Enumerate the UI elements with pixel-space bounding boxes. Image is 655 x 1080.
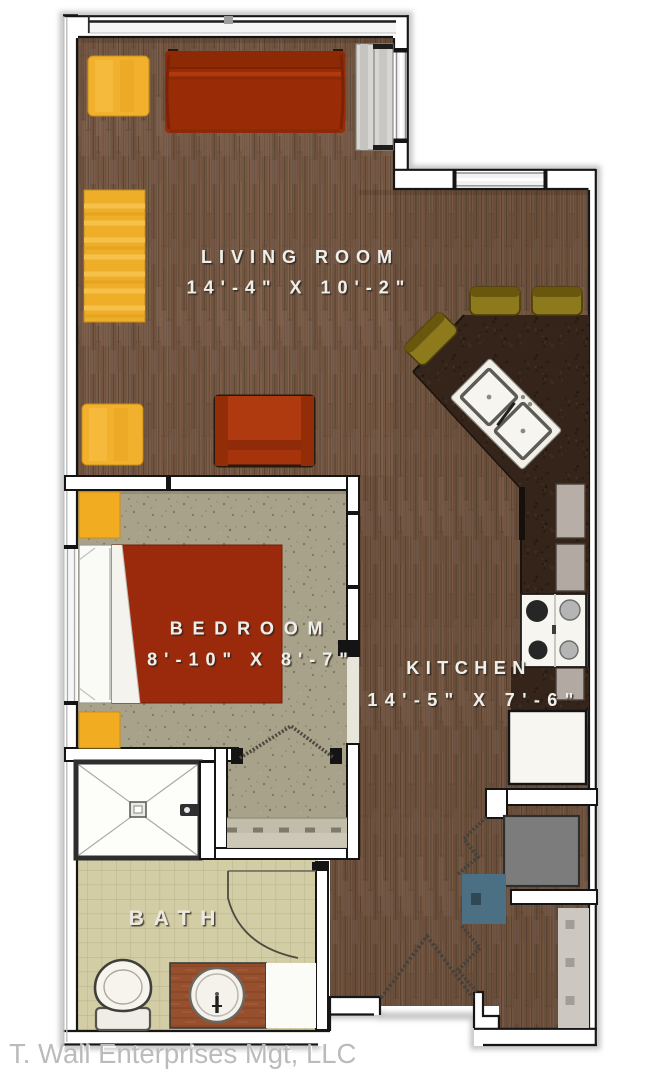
svg-text:LIVING ROOM: LIVING ROOM	[201, 247, 399, 267]
svg-text:T. Wall Enterprises Mgt, LLC: T. Wall Enterprises Mgt, LLC	[9, 1038, 356, 1069]
svg-text:14'-4" X 10'-2": 14'-4" X 10'-2"	[187, 278, 412, 298]
svg-text:BEDROOM: BEDROOM	[170, 619, 333, 639]
svg-text:KITCHEN: KITCHEN	[406, 658, 532, 678]
svg-text:14'-5" X 7'-6": 14'-5" X 7'-6"	[367, 690, 580, 710]
svg-text:BATH: BATH	[129, 907, 226, 930]
svg-text:8'-10" X 8'-7": 8'-10" X 8'-7"	[147, 650, 355, 670]
